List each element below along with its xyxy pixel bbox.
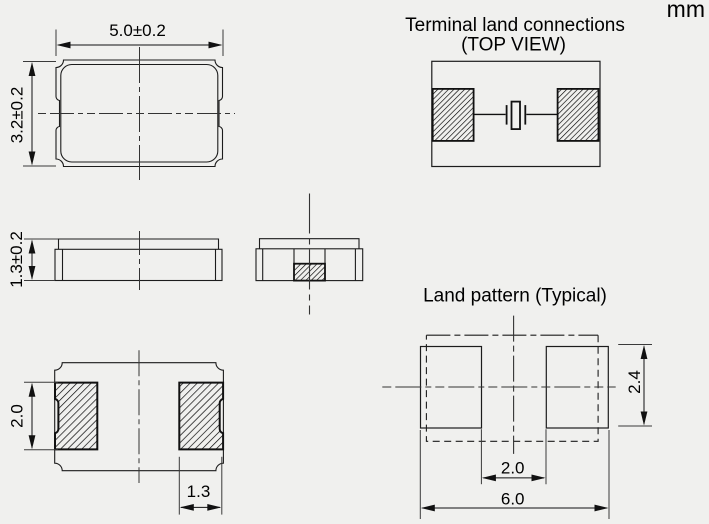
svg-text:1.3: 1.3 [187, 482, 211, 501]
svg-text:2.0: 2.0 [501, 459, 525, 478]
svg-text:2.4: 2.4 [625, 370, 644, 394]
svg-text:Terminal land connections: Terminal land connections [405, 15, 625, 36]
svg-text:2.0: 2.0 [8, 404, 27, 428]
svg-text:1.3±0.2: 1.3±0.2 [7, 231, 26, 288]
svg-text:3.2±0.2: 3.2±0.2 [7, 87, 26, 144]
svg-text:mm: mm [667, 0, 705, 22]
svg-text:6.0: 6.0 [501, 490, 525, 509]
svg-text:Land pattern (Typical): Land pattern (Typical) [423, 286, 607, 307]
svg-text:5.0±0.2: 5.0±0.2 [109, 21, 166, 40]
svg-text:(TOP VIEW): (TOP VIEW) [461, 35, 566, 56]
